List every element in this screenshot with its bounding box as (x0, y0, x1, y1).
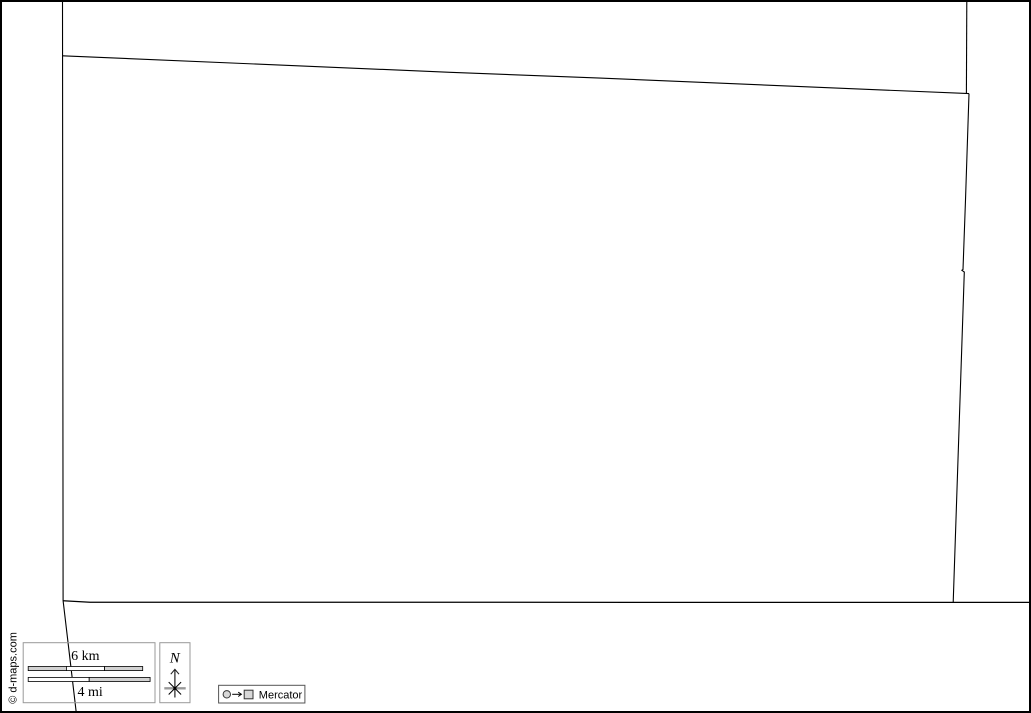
svg-text:Mercator: Mercator (259, 690, 303, 702)
svg-text:4 mi: 4 mi (77, 685, 102, 700)
svg-text:N: N (169, 651, 181, 667)
svg-text:© d-maps.com: © d-maps.com (8, 632, 20, 704)
svg-text:6 km: 6 km (71, 649, 100, 664)
